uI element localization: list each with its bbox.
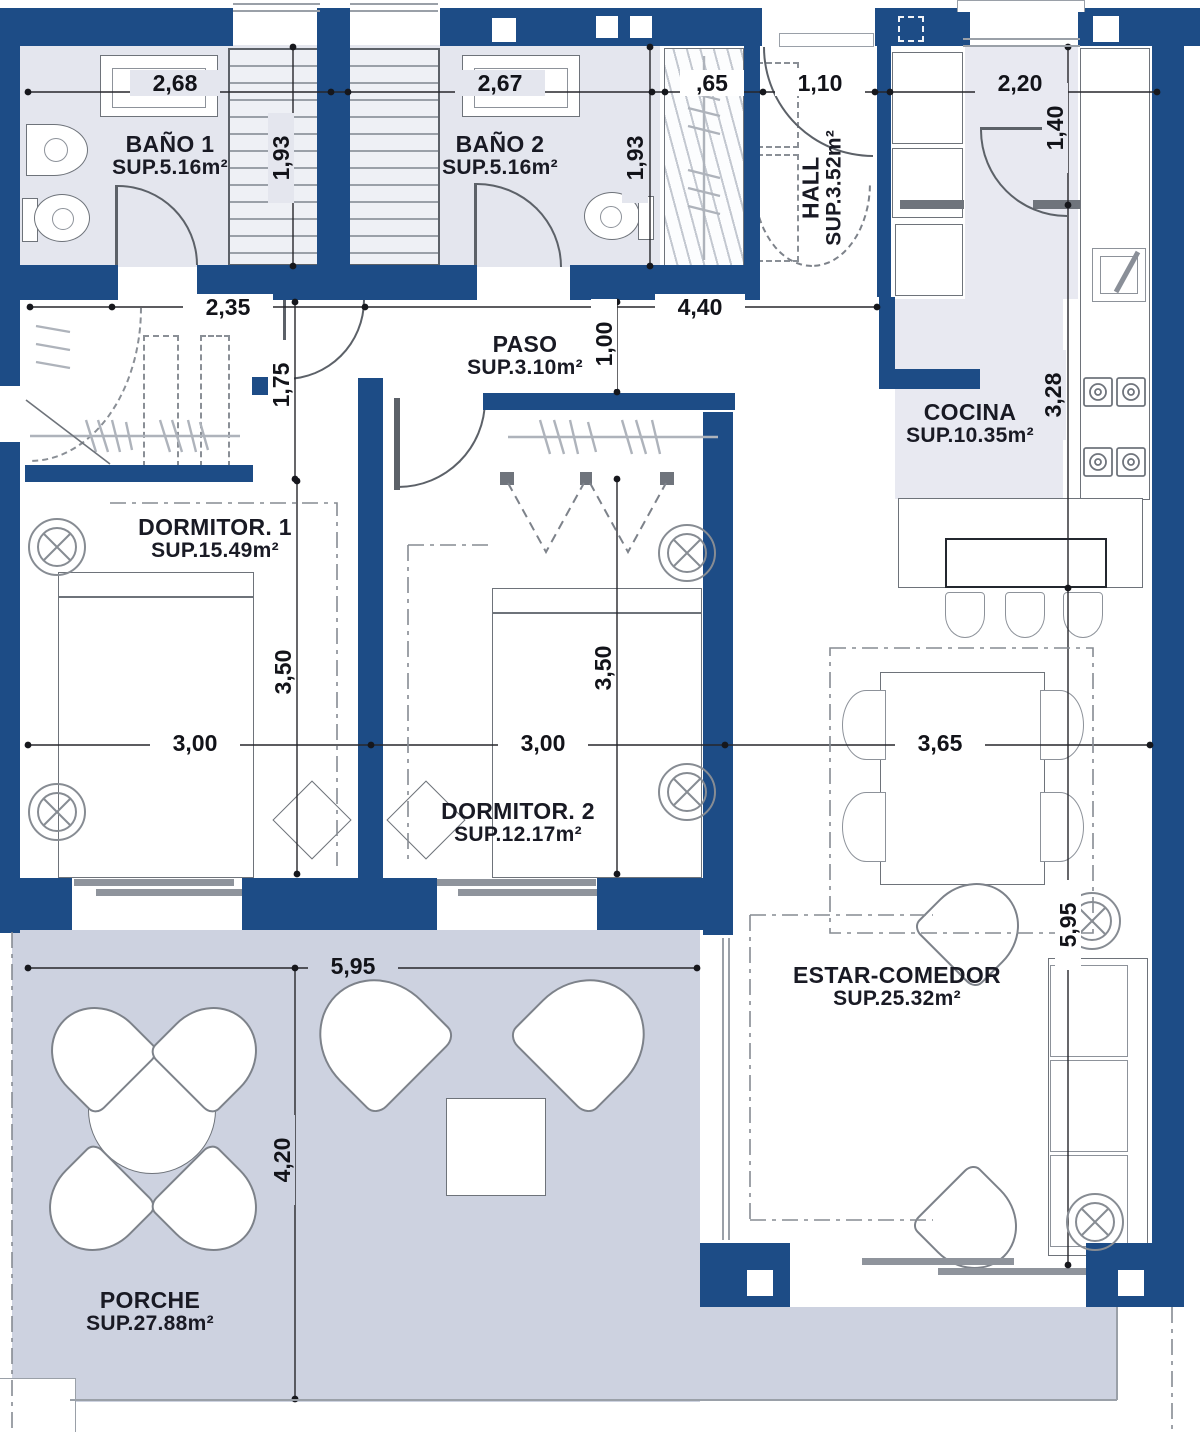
door-swing-bedroom2 xyxy=(398,400,486,488)
dim-bano2-height: 1,93 xyxy=(622,113,648,203)
dining-chair-right-2 xyxy=(1040,792,1084,862)
room-area-estar: SUP.25.32m² xyxy=(782,988,1012,1011)
sliding-door-bedroom1-a xyxy=(74,879,234,886)
wall-vent-7 xyxy=(1118,1270,1144,1296)
door-leaf-bedroom2 xyxy=(394,398,400,490)
sliding-door-bedroom1-b xyxy=(96,889,246,896)
room-area-dormitorio2: SUP.12.17m² xyxy=(413,824,623,847)
room-label-paso: PASO SUP.3.10m² xyxy=(440,332,610,380)
room-area-cocina: SUP.10.35m² xyxy=(890,425,1050,448)
room-name-bano2: BAÑO 2 xyxy=(456,131,545,157)
dim-bano2-width: 2,67 xyxy=(455,70,545,96)
dim-estar-height: 5,95 xyxy=(1055,880,1081,970)
kitchen-cabinet-3 xyxy=(895,224,963,296)
dim-dorm1-width: 3,00 xyxy=(150,730,240,756)
sofa-cushion-1 xyxy=(1050,965,1128,1057)
toilet1-drain xyxy=(52,208,74,230)
wall-vent-1 xyxy=(596,16,618,38)
wall-vent-3 xyxy=(492,18,516,42)
dim-porche-height: 4,20 xyxy=(269,1115,295,1205)
room-label-estar: ESTAR-COMEDOR SUP.25.32m² xyxy=(782,963,1012,1011)
room-area-bano2: SUP.5.16m² xyxy=(405,157,595,180)
wall-vent-6 xyxy=(747,1270,773,1296)
dim-dorm2-height: 3,50 xyxy=(590,623,616,713)
dim-bano1-height: 1,93 xyxy=(268,113,294,203)
sliding-door-bedroom2-b xyxy=(458,889,608,896)
wall-hall-left xyxy=(744,45,760,300)
closet2-jamb-3 xyxy=(660,472,674,485)
folding-doors-closet2 xyxy=(508,483,666,552)
room-label-hall: HALL SUP.3.52m² xyxy=(798,103,846,273)
dim-paso-width: 4,40 xyxy=(655,294,745,320)
wall-wardrobe-bottom xyxy=(25,465,253,482)
bar-stool-3 xyxy=(1063,592,1103,638)
kitchen-window-sill xyxy=(957,0,1085,12)
dim-dorm1-height: 3,50 xyxy=(270,627,296,717)
room-name-porche: PORCHE xyxy=(100,1287,200,1313)
dining-chair-right-1 xyxy=(1040,690,1084,760)
bed-1-headboard-line xyxy=(58,596,254,598)
entrance-door-panel xyxy=(779,33,874,47)
bedroom1-chair-icon xyxy=(272,780,351,859)
wall-living-bl xyxy=(700,1243,790,1307)
wall-bottom-2 xyxy=(242,878,437,930)
wall-bottom-3 xyxy=(597,878,703,930)
counter-stub-left xyxy=(900,200,964,209)
breakfast-bar xyxy=(945,538,1107,588)
bed-2-headboard-line xyxy=(492,612,702,614)
dim-comedor-width: 3,65 xyxy=(895,730,985,756)
sliding-door-bedroom2-a xyxy=(436,879,596,886)
room-name-estar: ESTAR-COMEDOR xyxy=(793,962,1001,988)
room-name-hall: HALL xyxy=(797,156,823,219)
left-wall-window xyxy=(0,386,20,442)
dim-armario-hall-width: ,65 xyxy=(680,70,744,96)
closet2-jamb-1 xyxy=(500,472,514,485)
wall-kitchen-b xyxy=(879,369,980,389)
dim-paso-height: 1,00 xyxy=(591,299,617,389)
wall-band-1 xyxy=(20,265,118,300)
wall-vent-2 xyxy=(630,16,652,38)
sliding-door-living-b xyxy=(938,1268,1088,1275)
bed-1-icon xyxy=(58,572,254,878)
sliding-door-living-a xyxy=(862,1258,1014,1265)
room-label-cocina: COCINA SUP.10.35m² xyxy=(890,400,1050,448)
dim-dorm2-width: 3,00 xyxy=(498,730,588,756)
wall-top-a xyxy=(0,8,233,46)
dim-porche-width: 5,95 xyxy=(308,953,398,979)
wall-vent-4 xyxy=(898,16,924,42)
room-label-dormitorio1: DORMITOR. 1 SUP.15.49m² xyxy=(110,515,320,563)
dining-table-icon xyxy=(880,672,1045,885)
room-area-porche: SUP.27.88m² xyxy=(60,1313,240,1336)
floor-plan: BAÑO 1 SUP.5.16m² BAÑO 2 SUP.5.16m² HALL… xyxy=(0,0,1200,1432)
wall-bedroom2-right xyxy=(703,412,733,935)
room-name-dormitorio2: DORMITOR. 2 xyxy=(441,798,595,824)
wall-left xyxy=(0,8,20,933)
kitchen-cabinet-1 xyxy=(892,52,963,144)
porch-coffee-table xyxy=(446,1098,546,1196)
wall-bottom-1 xyxy=(20,878,72,930)
dining-chair-left-1 xyxy=(842,690,886,760)
room-label-bano2: BAÑO 2 SUP.5.16m² xyxy=(405,132,595,180)
dim-bano1-width: 2,68 xyxy=(130,70,220,96)
dim-cocina-height: 3,28 xyxy=(1040,350,1066,440)
bidet-drain-icon xyxy=(44,138,68,162)
wall-closet2-top xyxy=(483,393,735,410)
closet2-jamb-2 xyxy=(580,472,592,485)
dim-hall-width: 1,10 xyxy=(775,70,865,96)
toilet2-drain xyxy=(600,206,622,228)
room-label-porche: PORCHE SUP.27.88m² xyxy=(60,1288,240,1336)
room-area-bano1: SUP.5.16m² xyxy=(75,157,265,180)
wardrobe1-slider-1 xyxy=(143,335,179,467)
room-area-dormitorio1: SUP.15.49m² xyxy=(110,540,320,563)
wall-shower-divider xyxy=(317,8,350,268)
room-name-cocina: COCINA xyxy=(924,399,1017,425)
room-label-bano1: BAÑO 1 SUP.5.16m² xyxy=(75,132,265,180)
dining-chair-left-2 xyxy=(842,792,886,862)
room-name-dormitorio1: DORMITOR. 1 xyxy=(138,514,292,540)
wardrobe1-slider-2 xyxy=(200,335,230,467)
bar-stool-1 xyxy=(945,592,985,638)
room-area-paso: SUP.3.10m² xyxy=(440,357,610,380)
sofa-cushion-3 xyxy=(1050,1155,1128,1247)
wall-hall-kitchen xyxy=(877,45,891,297)
dim-armario1-height: 1,75 xyxy=(268,340,294,430)
wall-right xyxy=(1152,30,1184,1307)
room-name-paso: PASO xyxy=(493,331,558,357)
dim-armario1-width: 2,35 xyxy=(183,294,273,320)
kitchen-sink-basin xyxy=(1100,256,1138,294)
sofa-cushion-2 xyxy=(1050,1060,1128,1152)
terrace-strip-floor xyxy=(700,1307,1117,1399)
door-leaf-bath1 xyxy=(115,185,118,267)
wardrobe1-door-swing xyxy=(30,308,142,462)
room-area-hall: SUP.3.52m² xyxy=(823,103,846,273)
room-name-bano1: BAÑO 1 xyxy=(126,131,215,157)
door-swing-paso xyxy=(285,300,365,380)
room-label-dormitorio2: DORMITOR. 2 SUP.12.17m² xyxy=(413,799,623,847)
porch-step xyxy=(0,1378,76,1432)
dim-cocina-entry-height: 1,40 xyxy=(1042,83,1068,173)
wall-bedroom-divider xyxy=(358,378,383,905)
wall-vent-5 xyxy=(1093,16,1119,42)
bar-stool-2 xyxy=(1005,592,1045,638)
door-leaf-bath2 xyxy=(474,183,477,267)
